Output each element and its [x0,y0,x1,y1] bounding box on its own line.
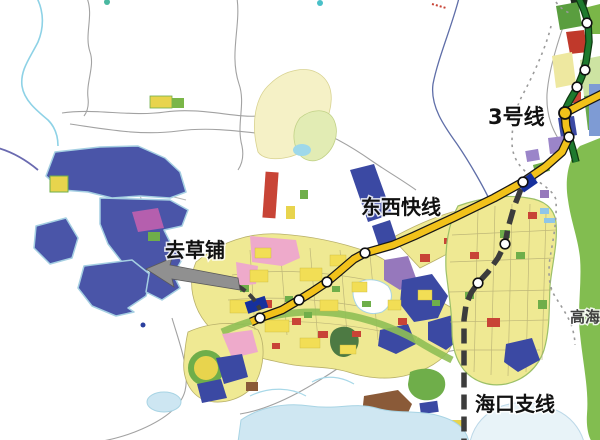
east-west-express-station [322,277,332,287]
river-light [22,0,58,146]
east-west-express-junction [559,107,571,119]
east-west-express-station [255,313,265,323]
line-3-station [582,18,592,28]
line-3-station [572,82,582,92]
green-strip [567,138,600,440]
label-right-edge-partial: 高海 [570,308,600,326]
east-west-express-station [294,295,304,305]
river-left-edge [0,148,38,170]
label-to-caopu: 去草铺 [165,238,225,262]
haikou-branch-station [473,278,483,288]
line-3-station [580,65,590,75]
east-west-express-station [518,177,528,187]
yellow-patch [50,176,68,192]
label-line3: 3号线 [488,105,545,129]
east-west-express-station [564,132,574,142]
green-patch [148,232,160,241]
label-haikou-branch: 海口支线 [475,392,555,416]
north-strip [254,70,336,219]
label-east-west-express: 东西快线 [361,195,441,219]
east-west-express-station [360,248,370,258]
district-blue [34,146,188,316]
haikou-branch-station [500,239,510,249]
planning-map: 东西快线 3号线 去草铺 海口支线 高海 [0,0,600,440]
